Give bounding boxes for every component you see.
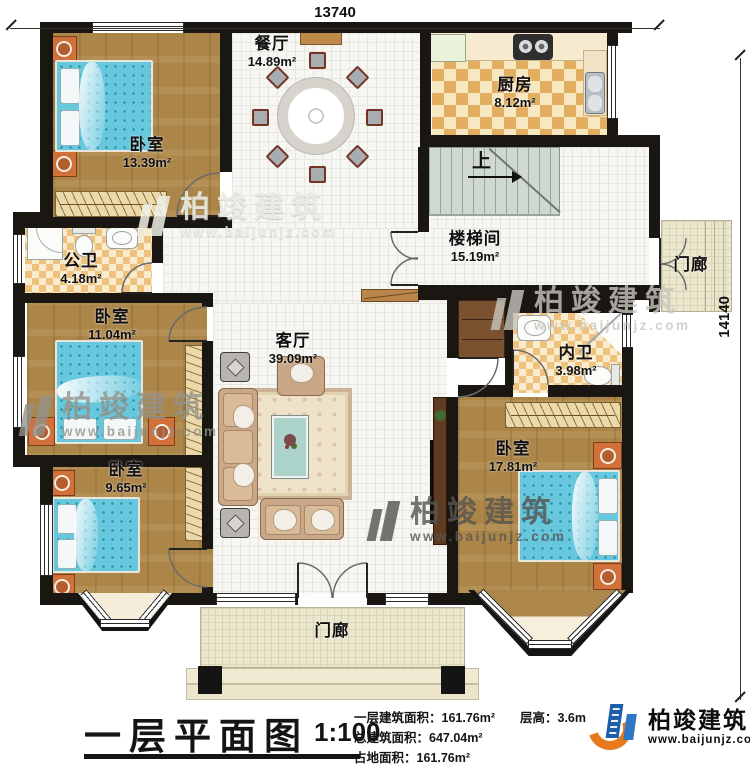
porch-column bbox=[198, 666, 222, 694]
fridge bbox=[428, 34, 466, 62]
nightstand bbox=[148, 417, 175, 446]
floor-plan: 卧室 13.39m² 餐厅 14.89m² 厨房 8.12m² 楼梯间 15.1… bbox=[0, 0, 750, 771]
room-area: 17.81m² bbox=[468, 459, 558, 474]
door-arc bbox=[169, 307, 207, 341]
room-name: 楼梯间 bbox=[425, 230, 525, 249]
sink-bowl bbox=[588, 76, 602, 92]
lamp-icon bbox=[34, 424, 50, 440]
wall bbox=[505, 300, 513, 385]
lamp-icon bbox=[56, 156, 72, 172]
throw-pillow bbox=[311, 509, 335, 531]
room-label-bedroom-br: 卧室 17.81m² bbox=[468, 440, 558, 475]
porch-column bbox=[441, 666, 465, 694]
window bbox=[13, 356, 25, 428]
throw-pillow bbox=[233, 463, 255, 487]
wardrobe bbox=[505, 402, 621, 428]
porch-step bbox=[186, 684, 479, 700]
pillow bbox=[103, 418, 137, 440]
closet-shelf bbox=[462, 319, 503, 320]
door-arc bbox=[169, 549, 207, 587]
washbasin bbox=[517, 315, 551, 341]
window bbox=[100, 619, 150, 627]
room-name: 卧室 bbox=[468, 440, 558, 459]
shower-arc bbox=[36, 227, 62, 253]
wall bbox=[548, 385, 633, 397]
window bbox=[622, 314, 633, 348]
wall bbox=[202, 293, 213, 307]
room-name: 内卫 bbox=[531, 344, 621, 363]
shoe-cabinet-line bbox=[364, 292, 418, 300]
room-label-porch-right: 门廊 bbox=[663, 256, 719, 275]
room-label-bedroom-tl: 卧室 13.39m² bbox=[102, 136, 192, 171]
room-label-bedroom-bl: 卧室 9.65m² bbox=[81, 461, 171, 496]
room-label-dining: 餐厅 14.89m² bbox=[227, 35, 317, 70]
dining-chair bbox=[252, 109, 269, 126]
wall bbox=[13, 293, 213, 303]
wall bbox=[505, 300, 633, 313]
burner-icon bbox=[519, 40, 532, 53]
room-name: 卧室 bbox=[67, 308, 157, 327]
bed bbox=[52, 497, 140, 573]
dining-table-center bbox=[308, 108, 324, 124]
bed bbox=[55, 340, 143, 444]
nightstand bbox=[28, 417, 55, 446]
wall bbox=[447, 300, 458, 358]
window bbox=[216, 593, 296, 605]
bed bbox=[518, 470, 620, 562]
brand-name: 柏竣建筑 bbox=[648, 708, 750, 733]
basin-bowl bbox=[112, 231, 132, 245]
wall bbox=[40, 22, 53, 218]
basin-bowl bbox=[524, 320, 546, 336]
dimension-label-top: 13740 bbox=[285, 4, 385, 21]
room-name: 公卫 bbox=[36, 252, 126, 271]
wall bbox=[152, 228, 163, 263]
room-label-bath-private: 内卫 3.98m² bbox=[531, 344, 621, 379]
room-name: 客厅 bbox=[248, 332, 338, 351]
window bbox=[40, 504, 53, 576]
wall bbox=[418, 285, 660, 300]
wardrobe bbox=[185, 345, 203, 457]
room-area: 14.89m² bbox=[227, 54, 317, 69]
arrow-head-icon bbox=[512, 171, 522, 183]
dining-chair bbox=[366, 109, 383, 126]
room-area: 9.65m² bbox=[81, 480, 171, 495]
room-name: 厨房 bbox=[470, 76, 560, 95]
porch-step bbox=[186, 668, 479, 684]
wall bbox=[202, 467, 213, 549]
door-arc bbox=[298, 563, 332, 598]
door-arc bbox=[333, 563, 367, 598]
room-label-porch-bottom: 门廊 bbox=[287, 622, 377, 641]
window bbox=[528, 640, 572, 649]
burner-icon bbox=[535, 40, 548, 53]
stairs-up-arrow bbox=[468, 176, 512, 178]
wall bbox=[13, 217, 232, 228]
stove bbox=[513, 34, 553, 60]
throw-pillow bbox=[233, 405, 255, 429]
room-name: 门廊 bbox=[287, 622, 377, 641]
lamp-icon bbox=[600, 569, 616, 585]
washbasin bbox=[106, 227, 138, 249]
room-label-bath-public: 公卫 4.18m² bbox=[36, 252, 126, 287]
pillow bbox=[63, 418, 97, 440]
nightstand bbox=[50, 36, 77, 62]
stairs bbox=[428, 147, 560, 216]
door-arc bbox=[177, 173, 220, 216]
pillow bbox=[598, 520, 618, 556]
coffee-table bbox=[272, 416, 308, 478]
brand-logo-icon bbox=[588, 698, 644, 756]
floor-plan-title: 一层平面图 bbox=[84, 706, 309, 760]
sink-bowl bbox=[588, 95, 602, 111]
brand-url: www.baijunjz.com bbox=[648, 734, 750, 746]
door-arc bbox=[122, 263, 152, 293]
sofa-cushion bbox=[223, 430, 253, 464]
stairs-landing-edge bbox=[428, 214, 560, 216]
lamp-icon bbox=[600, 448, 616, 464]
room-name: 门廊 bbox=[663, 256, 719, 275]
pillow bbox=[598, 478, 618, 514]
dining-chair bbox=[309, 166, 326, 183]
room-label-kitchen: 厨房 8.12m² bbox=[470, 76, 560, 111]
lamp-icon bbox=[56, 41, 72, 57]
title-underline bbox=[84, 754, 360, 759]
sofa bbox=[218, 388, 258, 506]
wardrobe bbox=[185, 467, 203, 541]
door-arc bbox=[458, 358, 498, 397]
wall bbox=[202, 587, 213, 605]
room-area: 4.18m² bbox=[36, 271, 126, 286]
room-name: 卧室 bbox=[81, 461, 171, 480]
dimension-label-right: 14140 bbox=[716, 296, 733, 338]
closet bbox=[458, 300, 505, 358]
nightstand bbox=[50, 150, 77, 177]
info-line: 占地面积：161.76m² bbox=[354, 747, 470, 766]
door-arc bbox=[391, 232, 418, 259]
room-label-living: 客厅 39.09m² bbox=[248, 332, 338, 367]
kitchen-sink bbox=[585, 72, 605, 114]
room-name: 卧室 bbox=[102, 136, 192, 155]
room-area: 13.39m² bbox=[102, 155, 192, 170]
nightstand bbox=[593, 563, 622, 590]
bed-sheet bbox=[74, 499, 98, 571]
bed-sheet bbox=[572, 472, 598, 560]
room-label-bedroom-ml: 卧室 11.04m² bbox=[67, 308, 157, 343]
door-arc bbox=[391, 258, 418, 285]
room-area: 8.12m² bbox=[470, 95, 560, 110]
info-line: 总建筑面积：647.04m² bbox=[354, 727, 483, 746]
closet-shelf bbox=[462, 339, 503, 340]
pillow bbox=[60, 110, 80, 146]
room-name: 餐厅 bbox=[227, 35, 317, 54]
nightstand bbox=[593, 442, 622, 469]
wall bbox=[420, 135, 660, 147]
room-area: 3.98m² bbox=[531, 363, 621, 378]
room-area: 15.19m² bbox=[425, 249, 525, 264]
wall bbox=[418, 147, 429, 232]
wall bbox=[202, 341, 213, 463]
lamp-icon bbox=[54, 475, 70, 491]
wall bbox=[649, 147, 660, 238]
shoe-cabinet bbox=[361, 289, 419, 302]
pillow bbox=[60, 68, 80, 104]
wardrobe-rod bbox=[60, 204, 161, 205]
plant-icon bbox=[435, 410, 446, 421]
brand-logo: 柏竣建筑 www.baijunjz.com bbox=[588, 698, 750, 756]
info-line: 一层建筑面积：161.76m² bbox=[354, 707, 495, 726]
floor-height-label: 层高：3.6m bbox=[520, 707, 586, 726]
wall bbox=[447, 397, 458, 593]
room-label-stairwell: 楼梯间 15.19m² bbox=[425, 230, 525, 265]
end-table bbox=[220, 508, 250, 538]
wardrobe-rod bbox=[511, 415, 616, 416]
end-table-top bbox=[226, 514, 244, 532]
lamp-icon bbox=[154, 424, 170, 440]
loveseat bbox=[260, 498, 344, 540]
window bbox=[13, 234, 25, 284]
end-table-top bbox=[226, 358, 244, 376]
dimension-line bbox=[10, 28, 660, 29]
wardrobe bbox=[55, 191, 167, 217]
room-area: 11.04m² bbox=[67, 327, 157, 342]
wall bbox=[420, 22, 431, 137]
end-table bbox=[220, 352, 250, 382]
dimension-line bbox=[740, 58, 741, 700]
bed-sheet bbox=[56, 373, 142, 405]
window bbox=[607, 45, 618, 119]
window bbox=[385, 593, 429, 605]
room-area: 39.09m² bbox=[248, 351, 338, 366]
flower-decor bbox=[284, 434, 296, 446]
throw-pillow bbox=[273, 509, 297, 531]
stairs-up-label: 上 bbox=[472, 146, 491, 173]
tv-screen bbox=[430, 440, 433, 524]
